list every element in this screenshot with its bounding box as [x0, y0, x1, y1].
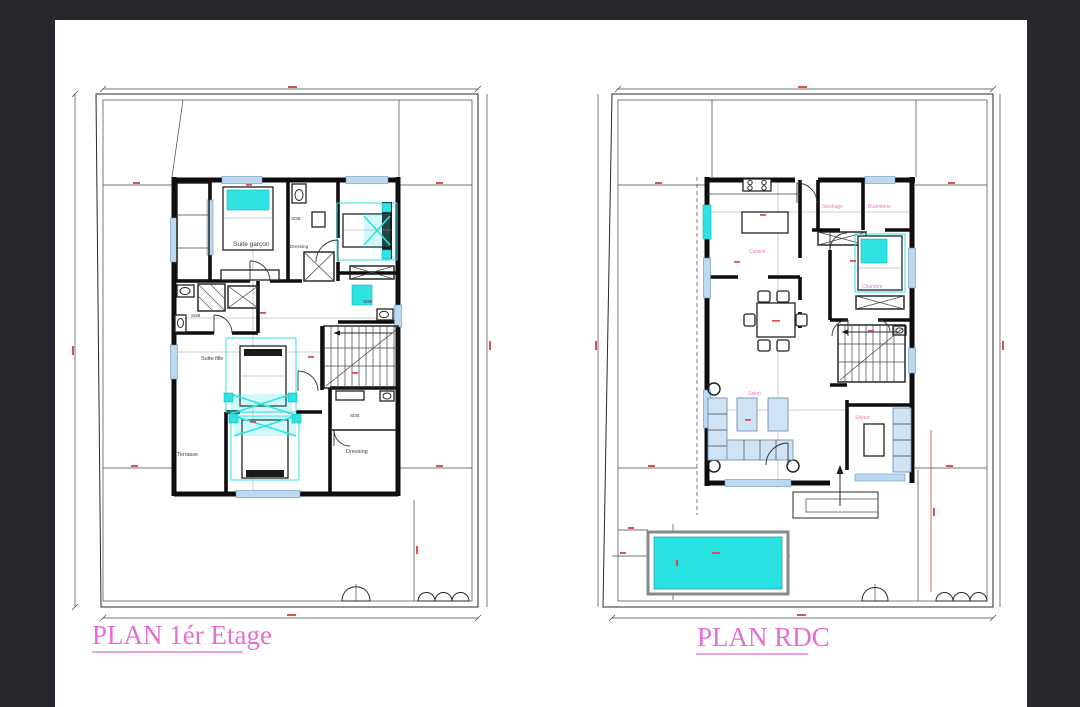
closet-strip — [177, 183, 209, 280]
toilet-icon — [292, 184, 306, 203]
room-label-dressing-mid: Dressing — [290, 244, 309, 249]
sink-icon — [175, 315, 186, 332]
suite-fille-bed-icon — [224, 338, 297, 414]
wardrobe-icon — [304, 252, 334, 281]
entry-steps — [793, 465, 878, 518]
toilet-icon — [380, 391, 394, 401]
etage-plot-boundary — [96, 94, 478, 607]
sejour-sofa-icon — [864, 408, 911, 472]
room-label-sdb-right: SDB — [363, 299, 372, 304]
letterbox-top — [0, 0, 1080, 20]
stairs-icon — [324, 326, 398, 388]
floor-plans-drawing: Suite garçon SDB Dressing — [0, 0, 1080, 707]
letterbox-right — [1027, 0, 1080, 707]
swimming-pool — [612, 524, 790, 600]
room-label-suite-garcon: Suite garçon — [233, 241, 270, 248]
letterbox-left — [0, 0, 55, 707]
lower-bed-icon — [229, 414, 301, 480]
room-label-cuisine: Cuisine — [749, 249, 766, 255]
sink-icon — [312, 212, 325, 227]
plan-rdc: Cuisine Stockage Buanderie Chambre — [595, 86, 1004, 654]
room-label-sdb-top: SDB — [291, 216, 300, 221]
kitchen-icons — [707, 179, 800, 233]
room-label-sdb-bottom: SDB — [350, 413, 359, 418]
plan-etage: Suite garçon SDB Dressing — [72, 86, 491, 652]
parents-bed-icon — [337, 202, 397, 260]
room-label-buanderie: Buanderie — [868, 204, 891, 210]
toilet-icon — [377, 309, 393, 320]
room-label-chambre: Chambre — [862, 284, 883, 290]
rdc-plot-boundary — [603, 94, 993, 607]
rdc-gates — [862, 584, 987, 601]
room-label-suite-fille: Suite fille — [201, 356, 223, 362]
room-label-sejour: Séjour — [855, 415, 870, 421]
room-label-stockage: Stockage — [822, 204, 843, 210]
rdc-title: PLAN RDC — [697, 622, 830, 652]
room-label-dressing-bottom: Dressing — [346, 449, 368, 455]
room-label-terrasse: Terrasse — [177, 452, 198, 458]
cad-sheet: Suite garçon SDB Dressing — [0, 0, 1080, 707]
room-label-sdb-left: SDB — [191, 313, 200, 318]
wardrobe-icon — [228, 286, 258, 308]
etage-gates — [342, 584, 469, 601]
room-label-salon: Salon — [748, 391, 761, 397]
wardrobe-icon — [856, 296, 904, 309]
dining-table-icon — [744, 291, 807, 351]
shower-icon — [198, 284, 225, 311]
etage-title: PLAN 1ér Etage — [92, 620, 272, 650]
sink-counter-icon — [336, 391, 364, 400]
toilet-icon — [177, 285, 194, 297]
